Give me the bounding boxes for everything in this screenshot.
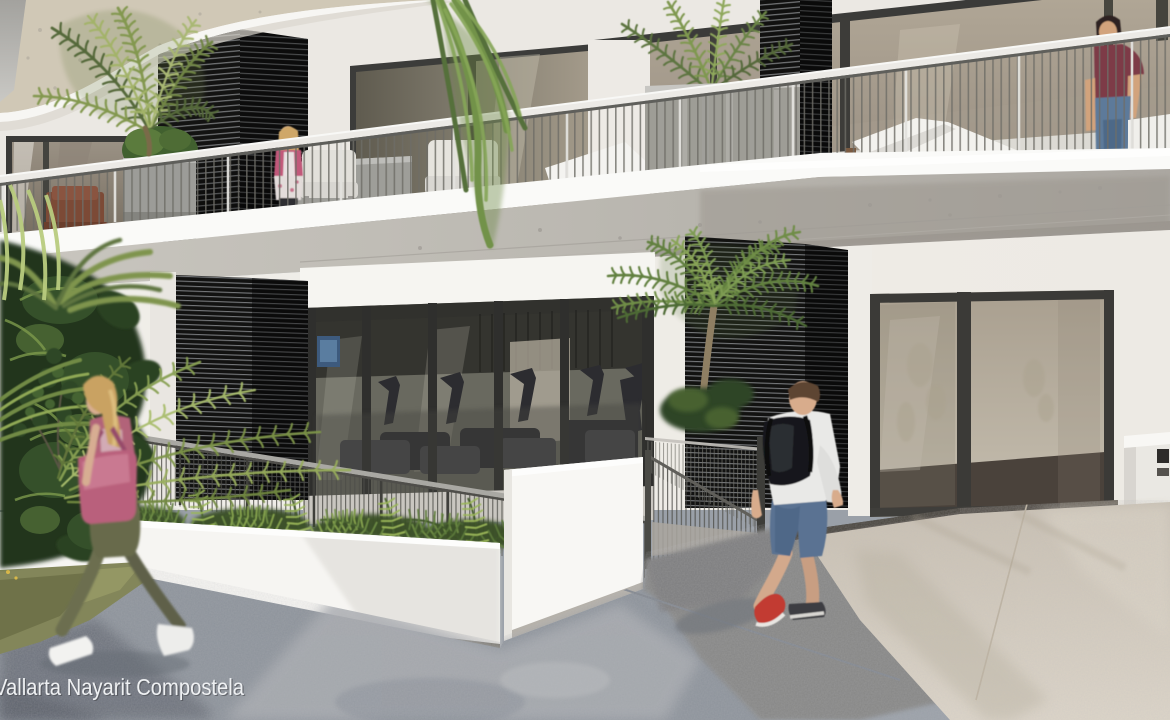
svg-text:Vallarta Nayarit Compostela: Vallarta Nayarit Compostela [0,674,244,700]
